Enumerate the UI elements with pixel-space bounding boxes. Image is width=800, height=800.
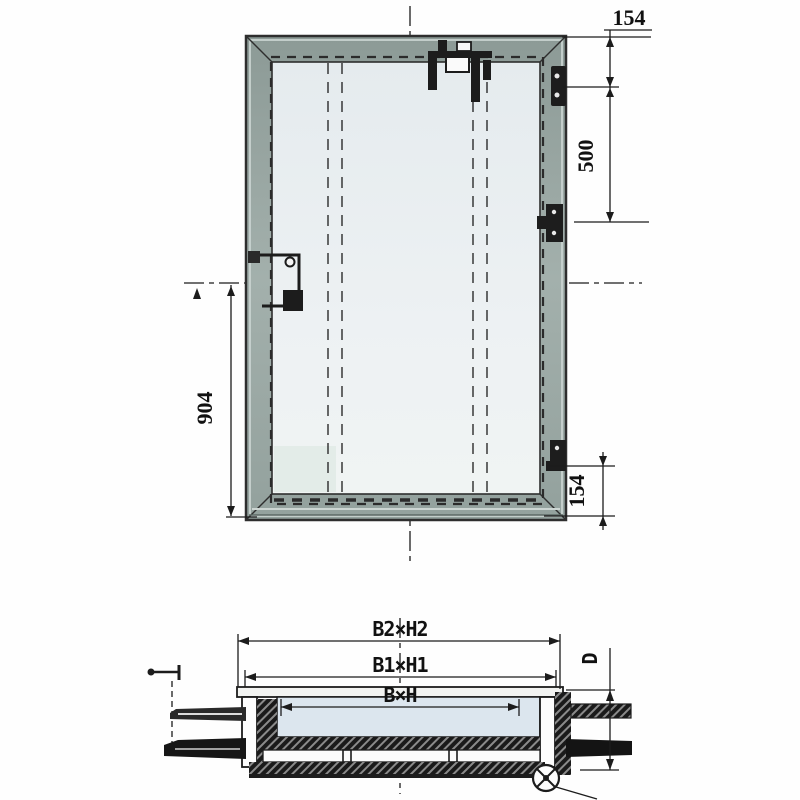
stiffener-strip <box>263 750 540 762</box>
dim-label-154-bottom: 154 <box>564 475 589 508</box>
dim-label-154-top: 154 <box>613 5 646 30</box>
drawing-canvas: 154 500 154 904 <box>0 0 800 800</box>
seal-strip-upper <box>263 737 540 750</box>
handle-pin-knob <box>148 669 155 676</box>
front-view: 154 500 154 904 <box>184 5 652 566</box>
hinge-leader-line <box>556 787 597 799</box>
seal-strip-lower <box>249 762 545 774</box>
section-handle <box>148 665 247 759</box>
dim-label-b1h1: B1×H1 <box>372 653 428 677</box>
dimension-500: 500 <box>573 88 649 222</box>
dim-label-500: 500 <box>573 140 598 173</box>
hinge-arm-upper <box>571 704 631 718</box>
hinge-top <box>551 66 566 106</box>
right-gasket-hatch <box>555 692 571 775</box>
door-frame <box>246 36 566 520</box>
dim-label-904: 904 <box>192 392 217 425</box>
right-frame-post <box>540 697 555 767</box>
hinge-arm-lower <box>566 739 632 757</box>
bottom-plate <box>249 774 545 778</box>
dimension-154-top: 154 <box>562 5 652 222</box>
dim-label-bh: B×H <box>383 683 416 707</box>
dim-label-b2h2: B2×H2 <box>372 617 427 641</box>
stiffener-cut-2 <box>449 750 457 762</box>
technical-drawing: 154 500 154 904 <box>0 0 800 800</box>
section-view: B2×H2 B1×H1 B×H D <box>148 617 633 799</box>
stiffener-cut-1 <box>343 750 351 762</box>
door-panel <box>272 62 540 494</box>
dim-label-d: D <box>578 653 602 665</box>
